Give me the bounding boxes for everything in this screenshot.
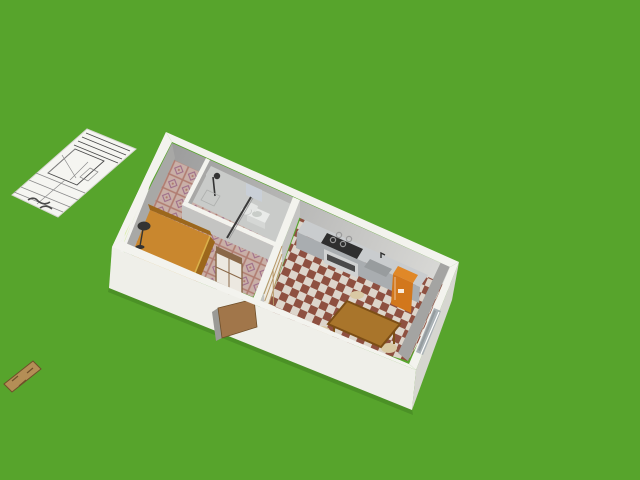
sink-basin: [252, 211, 262, 217]
3d-view-window: [0, 0, 640, 480]
chair-back-seat: [350, 291, 364, 299]
fridge-label: [398, 289, 404, 293]
lamp-shade: [138, 222, 151, 231]
shower-head: [214, 173, 220, 179]
3d-view-canvas[interactable]: [0, 0, 640, 480]
